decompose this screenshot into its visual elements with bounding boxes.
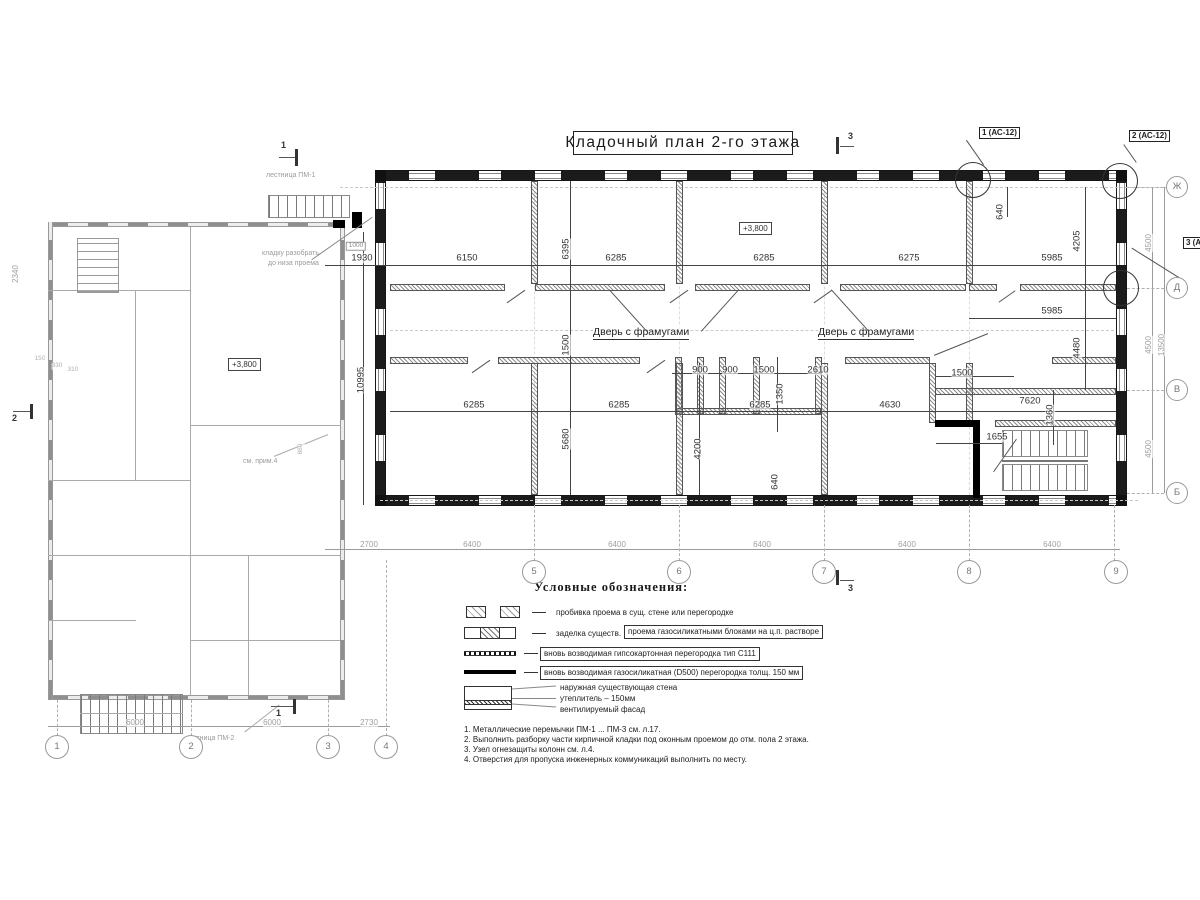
legend-item-2-boxed: проема газосиликатными блоками на ц.п. р… [624,625,823,639]
dimension-label: 1500 [753,365,774,375]
leader-line [701,289,739,331]
legend-title: Условные обозначения: [534,580,688,595]
exterior-wall-left [375,181,386,495]
legend-item-1: пробивка проема в сущ. стене или перегор… [556,608,733,618]
partition [390,284,505,291]
partition [845,357,930,364]
partition [840,284,966,291]
section-label: 1 [276,709,281,718]
legend-symbol-block-wall [464,670,516,674]
partition [498,357,640,364]
callout-1: 1 (АС-12) [979,127,1020,139]
wall [48,222,345,227]
dimension-label: 900 [722,365,738,375]
axis-line [390,330,1114,331]
section-label: 2 [12,414,17,423]
dimension-label: 4205 [1072,230,1082,251]
legend-dash [532,612,546,613]
stair-label: лестница ПМ-1 [266,171,315,180]
note-line: 2. Выполнить разборку части кирпичной кл… [464,735,864,745]
dimension-label: 6285 [463,400,484,410]
legend-symbol-opening [500,606,520,618]
dimension-label: 150 [35,356,46,363]
stairs-left-building [77,238,119,293]
section-marker [836,570,839,585]
door-leaf [507,290,526,303]
legend-infill-cell [500,628,515,638]
axis-marker-1: 1 [45,735,69,759]
section-label: 3 [848,584,853,593]
note-line: 3. Узел огнезащиты колонн см. л.4. [464,745,864,755]
dimension-label: 6400 [753,541,771,549]
dimension-label: 6000 [263,719,281,727]
partition [821,181,828,284]
dimension-label: 5985 [1041,306,1062,316]
dimension-label: 6400 [463,541,481,549]
wall [333,220,345,228]
legend-symbol-infill [464,627,516,639]
stair-landing-line [1002,460,1088,462]
axis-marker-Д: Д [1166,277,1188,299]
dimension-line [390,411,1116,412]
dimension-label: 2610 [807,365,828,375]
dimension-label: 6285 [605,253,626,263]
note-line: 4. Отверстия для пропуска инженерных ком… [464,755,864,765]
axis-marker-2: 2 [179,735,203,759]
legend-item-4: вновь возводимая газосиликатная (D500) п… [540,666,803,680]
dimension-label: 1000 [346,242,366,251]
dimension-label: 6285 [749,400,770,410]
wall [190,227,191,695]
legend-dash [524,672,538,673]
axis-marker-6: 6 [667,560,691,584]
extension-line [191,700,192,736]
detail-circle [1102,163,1138,199]
legend-item-3: вновь возводимая гипсокартонная перегоро… [540,647,760,661]
partition [969,284,997,291]
dimension-label: 900 [692,365,708,375]
dimension-label: 640 [995,204,1005,220]
exterior-wall-top [375,170,1127,181]
axis-marker-5: 5 [522,560,546,584]
dimension-line [936,443,1002,444]
detail-circle [955,162,991,198]
drawing-sheet: Кладочный план 2-го этажа [0,0,1200,900]
note-line: 1. Металлические перемычки ПМ-1 ... ПМ-3… [464,725,864,735]
wall [48,555,341,556]
level-mark: +3,800 [228,358,261,371]
section-marker [30,404,33,419]
partition [821,363,828,495]
partition [676,363,683,495]
extension-line [1114,505,1115,561]
dimension-label: 10995 [356,367,366,393]
wall [48,222,53,700]
dimension-label: 4480 [1072,337,1082,358]
wall [48,620,136,621]
dimension-label: 330 [52,363,63,370]
partition [531,181,538,284]
axis-marker-Б: Б [1166,482,1188,504]
axis-line [380,500,1138,501]
section-marker [840,146,854,147]
dimension-label: 4500 [1145,336,1153,354]
partition [1020,284,1116,291]
axis-marker-8: 8 [957,560,981,584]
extension-line [824,505,825,561]
dimension-label: 1930 [351,253,372,263]
section-marker [293,699,296,714]
stairs-main [1002,430,1088,457]
section-marker [279,157,295,158]
notes-block: 1. Металлические перемычки ПМ-1 ... ПМ-3… [464,725,864,765]
dimension-label: 6400 [1043,541,1061,549]
extension-line [1127,493,1169,494]
dimension-label: 6395 [561,238,571,259]
axis-marker-4: 4 [374,735,398,759]
dimension-label: 880 [298,444,305,455]
door-label: Дверь с фрамугами [593,326,689,340]
annotation: кладку разобрать [262,249,319,258]
dimension-line [1085,187,1086,390]
extension-line [679,505,680,561]
level-mark: +3,800 [739,222,772,235]
dimension-line [969,318,1116,319]
dimension-label: 1655 [986,432,1007,442]
wall [190,640,340,641]
dimension-label: 1350 [775,383,785,404]
section-marker [836,137,839,154]
extension-line [969,505,970,561]
dimension-line [325,265,1116,266]
stairs-pm1 [268,195,350,218]
extension-line [1127,390,1169,391]
legend-infill-cell [465,628,480,638]
dimension-label: 13500 [1158,334,1166,356]
axis-marker-В: В [1166,379,1188,401]
partition [935,388,1116,395]
stairs-pm2 [80,694,183,734]
dimension-label: 4500 [1145,440,1153,458]
dimension-line [936,376,1014,377]
axis-line [340,187,1168,188]
wall [48,480,191,481]
leader-line [512,698,556,699]
dimension-line [1007,187,1008,217]
legend-item-5-line3: вентилируемый фасад [560,705,645,715]
axis-marker-Ж: Ж [1166,176,1188,198]
dimension-label: 6275 [898,253,919,263]
dimension-label: 4630 [879,400,900,410]
extension-line [386,560,387,736]
dimension-label: 6400 [608,541,626,549]
legend-item-2: заделка существ. [556,629,621,639]
extension-line [57,700,58,736]
legend-insulation-strip [465,700,511,705]
leader-line [512,685,556,689]
drawing-title: Кладочный план 2-го этажа [573,131,793,155]
legend-dash [532,633,546,634]
callout-2: 2 (АС-12) [1129,130,1170,142]
axis-marker-7: 7 [812,560,836,584]
dimension-label: 2340 [12,265,20,283]
wall [248,555,249,695]
dimension-line [48,726,390,727]
legend-dash [524,653,538,654]
dimension-label: 6285 [608,400,629,410]
dimension-label: 1360 [1045,404,1055,425]
callout-leader [1123,144,1136,163]
wall [375,170,386,181]
door-leaf [814,290,833,303]
dimension-label: 7620 [1019,396,1040,406]
callout-3: 3 (АС-12) [1183,237,1200,249]
dimension-label: 2730 [360,719,378,727]
dimension-label: 2700 [360,541,378,549]
legend-symbol-opening [466,606,486,618]
partition [535,284,665,291]
extension-line [328,700,329,736]
wall [340,222,345,700]
stairs-main [1002,464,1088,491]
wall [190,425,341,426]
legend-item-5-line1: наружная существующая стена [560,683,677,693]
partition [695,284,810,291]
dimension-label: 310 [68,367,79,374]
dimension-label: 6400 [898,541,916,549]
section-marker [295,149,298,166]
new-wall [973,420,980,498]
axis-marker-9: 9 [1104,560,1128,584]
extension-line [534,505,535,561]
leader-line [512,703,556,707]
dimension-label: 4200 [693,438,703,459]
legend-symbol-gypsum-wall [464,651,516,656]
door-leaf [472,360,491,373]
detail-circle [1103,270,1139,306]
dimension-label: 6150 [456,253,477,263]
partition [531,363,538,495]
dimension-label: 640 [770,474,780,490]
section-marker [271,706,293,707]
door-leaf [647,360,666,373]
axis-marker-3: 3 [316,735,340,759]
dimension-label: 5680 [561,428,571,449]
exterior-wall-right [1116,181,1127,495]
section-label: 3 [848,132,853,141]
legend-item-5-line2: утеплитель – 150мм [560,694,635,704]
dimension-label: 1500 [561,334,571,355]
dimension-line [699,363,700,495]
leader-line [934,333,988,356]
section-marker [840,580,854,581]
partition [676,181,683,284]
legend-infill-cell [480,628,500,638]
section-marker [13,411,30,412]
section-label: 1 [281,141,286,150]
legend-symbol-exterior-wall [464,686,512,710]
dimension-label: 6000 [126,719,144,727]
dimension-label: 6285 [753,253,774,263]
annotation: см. прим.4 [243,457,277,466]
dimension-label: 1500 [951,368,972,378]
wall [48,290,191,291]
wall [80,713,183,714]
dimension-label: 4500 [1145,234,1153,252]
dimension-line [325,549,1120,550]
partition [1052,357,1116,364]
partition [390,357,468,364]
dimension-label: 5985 [1041,253,1062,263]
door-leaf [999,290,1016,302]
wall [135,290,136,480]
partition [995,420,1116,427]
